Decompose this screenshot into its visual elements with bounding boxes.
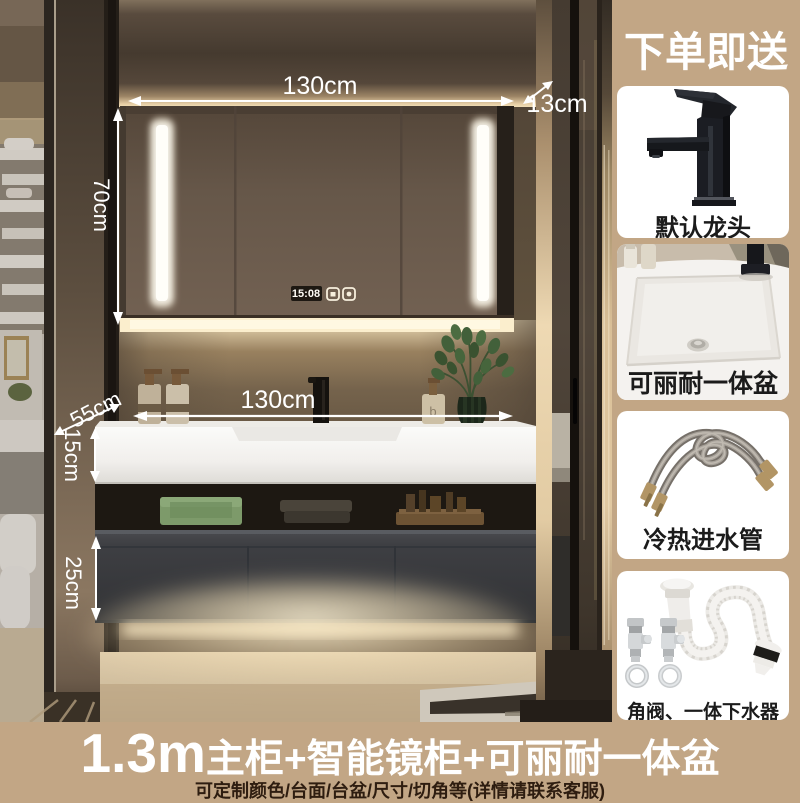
svg-text:25cm: 25cm bbox=[61, 556, 86, 610]
svg-text:13cm: 13cm bbox=[526, 90, 587, 118]
svg-text:130cm: 130cm bbox=[240, 386, 315, 414]
svg-text:15:08: 15:08 bbox=[292, 288, 320, 300]
svg-text:70cm: 70cm bbox=[89, 178, 114, 232]
svg-text:130cm: 130cm bbox=[282, 72, 357, 100]
svg-text:15cm: 15cm bbox=[60, 428, 85, 482]
